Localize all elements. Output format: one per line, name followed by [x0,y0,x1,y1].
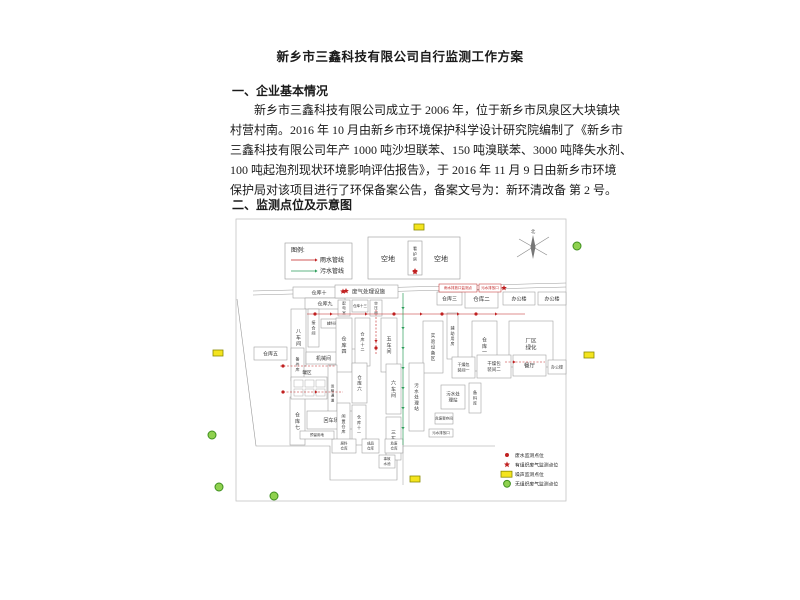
legend-noise-rect [501,471,512,477]
tank-cell [305,389,314,396]
building-label: 仓库五 [263,350,278,357]
fugitive-gas-point-marker [270,492,278,500]
guard-house-label: 看护房 [413,245,417,261]
building-label: 水池 [384,461,392,466]
paragraph-line: 新乡市三鑫科技有限公司成立于 2006 年，位于新乡市凤泉区大块镇块 [230,100,574,120]
tank-cell [316,380,325,387]
building-label: 仓库七 [295,412,300,431]
legend-title: 图例: [291,246,305,254]
building-label: 餐厅 [524,361,536,369]
building-label: 仓库四 [341,336,346,355]
building-label: 八车间 [296,329,301,347]
wastewater-point-marker [281,390,284,393]
building-label: 仓库 [341,446,349,451]
building-label: 仓库二 [473,295,490,303]
building-label: 实验设备区 [431,332,436,361]
paragraph-line: 100 吨起泡剂现状环境影响评估报告》，于 2016 年 11 月 9 日由新乡… [230,160,574,180]
noise-point-marker [410,476,420,482]
building-label: 危废暂存间 [435,416,453,421]
legend-pipe-label: 污水管线 [320,267,344,275]
site-monitoring-diagram: 图例:雨水管线污水管线空地空地看护房北仓库十仓库九八车间接合间辅料间(二)仓库五… [195,215,605,525]
building-label: 机械间 [316,355,331,362]
tank-area-label: 罐区 [303,369,312,376]
building-label: 成品 [367,441,375,446]
tank-cell [305,380,314,387]
open-area-label: 空地 [434,254,448,263]
building-label: 仓库九 [317,300,332,307]
fugitive-gas-point-marker [208,431,216,439]
noise-point-marker [213,350,223,356]
building-label: 仓库六 [357,374,362,392]
fugitive-gas-point-marker [573,242,581,250]
building-label: 接合间 [312,319,316,335]
building-label: 五车间 [386,337,391,355]
building-label: 空压间 [374,301,378,315]
wastewater-point-marker [440,312,443,315]
building-label: 装间一 [458,367,470,373]
building-label: 办公楼 [511,295,526,302]
building-label: 备件库 [296,356,300,372]
wastewater-point-marker [392,312,395,315]
legend-bottom-label: 无组织废气监测点位 [515,481,558,488]
building-label: 办公楼 [544,295,559,302]
building-label: 危废 [391,441,399,446]
outfall-annotation-label: 雨水排放口监测点 [444,285,472,290]
building-label: 运输通道 [331,383,335,402]
building-label: 干燥包 [458,361,470,367]
building-label: 干燥包 [487,360,501,367]
building-label: 绿化 [525,343,537,351]
body-paragraph: 新乡市三鑫科技有限公司成立于 2006 年，位于新乡市凤泉区大块镇块村营村南。2… [230,100,574,200]
wastewater-point-marker [313,312,316,315]
building-label: 仓库十 [311,289,326,296]
legend-pipe-label: 雨水管线 [320,256,344,264]
building-label: 仓库 [367,446,375,451]
paragraph-line: 三鑫科技有限公司年产 1000 吨沙坦联苯、150 吨溴联苯、3000 吨降失水… [230,140,574,160]
building-label: 理站 [449,397,458,404]
legend-gas-circle [504,480,511,487]
open-area-label: 空地 [381,254,395,263]
tank-cell [294,380,303,387]
legend-dot [505,453,509,457]
building-label: 预留用地 [310,432,324,437]
compass-north-label: 北 [531,228,536,235]
wastewater-point-marker [474,312,477,315]
building-label: 废气处理设施 [352,287,386,295]
building-label: 仓库 [391,446,399,451]
building-label: 回车场 [323,417,338,424]
building-label: 配电室 [342,301,346,315]
paragraph-line: 村营村南。2016 年 10 月由新乡市环境保护科学设计研究院编制了《新乡市 [230,120,574,140]
building-label: 仓库三 [442,295,457,302]
building-label: 仓库一 [482,337,487,356]
building-label: 仓库十一 [357,414,361,436]
tank-cell [316,389,325,396]
legend-bottom-label: 噪声监测点位 [515,471,544,478]
building-label: 辅助用房 [451,325,455,347]
noise-point-marker [584,352,594,358]
building-label: 六车间 [391,380,396,399]
noise-point-marker [414,224,424,230]
building-label: 厂区 [525,337,537,344]
building-label: 备料库 [473,389,477,405]
wastewater-point-marker [281,364,284,367]
section-heading-2: 二、监测点位及示意图 [232,196,352,213]
fugitive-gas-point-marker [215,483,223,491]
document-page: 新乡市三鑫科技有限公司自行监测工作方案 一、企业基本情况 新乡市三鑫科技有限公司… [0,0,800,600]
building-label: 事故 [384,456,392,461]
building-label: 闲置仓库 [342,413,346,435]
building-label: 装间二 [487,366,501,373]
building-label: 原料 [341,441,349,446]
building-label: 污水排放口 [432,430,450,435]
page-title: 新乡市三鑫科技有限公司自行监测工作方案 [0,46,800,65]
building-label: 污水处理站 [414,382,419,412]
building-label: 仓库十二 [361,331,365,353]
building-label: 办公楼 [551,363,563,369]
building-label: 仓库十三 [353,303,367,308]
legend-bottom-label: 有组织废气监测点位 [515,461,558,468]
building-label: 污水处 [446,391,460,398]
legend-bottom-label: 废水监测点位 [515,452,544,459]
tank-cell [294,389,303,396]
wastewater-point-marker [374,346,377,349]
outfall-annotation-label: 污水排放口 [481,285,499,290]
section-heading-1: 一、企业基本情况 [232,82,328,99]
